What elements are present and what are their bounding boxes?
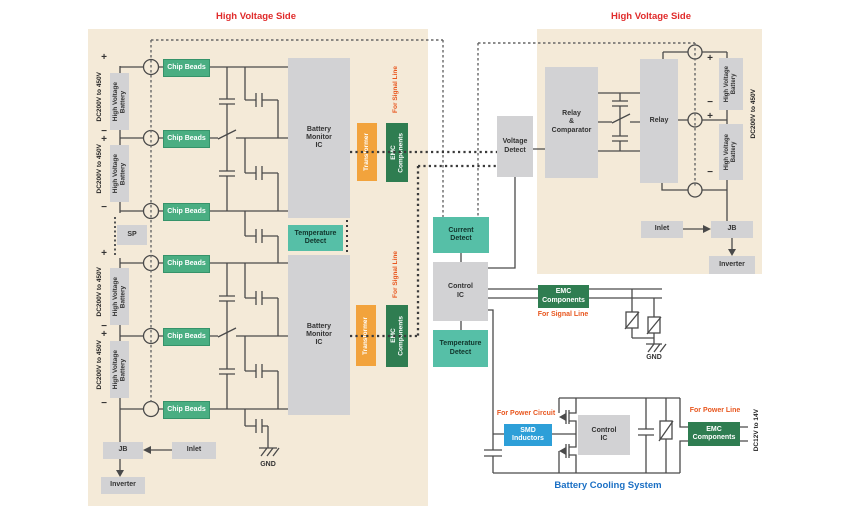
dc-range-text: DC200V to 450V: [96, 340, 103, 390]
minus-sign: −: [98, 203, 110, 213]
plus-sign: +: [98, 135, 110, 145]
emc-label: EMC Components: [390, 133, 405, 173]
jb-box: JB: [711, 221, 753, 238]
mosfet-icon: [559, 398, 576, 473]
chip-beads-box: Chip Beads: [163, 59, 210, 77]
dc-range-text: DC200V to 450V: [96, 72, 103, 122]
temperature-detect-box: Temperature Detect: [288, 225, 343, 251]
high-voltage-battery-box: High Voltage Battery: [110, 145, 129, 202]
sp-box: SP: [117, 225, 147, 245]
minus-sign: −: [704, 168, 716, 178]
battery-cooling-caption: Battery Cooling System: [546, 480, 670, 491]
high-voltage-battery-box: High Voltage Battery: [110, 341, 129, 398]
inlet-box: Inlet: [172, 442, 216, 459]
emc-label: EMC Components: [390, 316, 405, 356]
chip-beads-box: Chip Beads: [163, 255, 210, 273]
dc-range-text: DC200V to 450V: [96, 144, 103, 194]
battery-label: High Voltage Battery: [112, 350, 127, 389]
current-detect-box: Current Detect: [433, 217, 489, 253]
emc-components-box: EMC Components: [386, 305, 408, 367]
dc12-range-label: DC12V to 14V: [750, 403, 762, 457]
chip-beads-box: Chip Beads: [163, 401, 210, 419]
for-signal-line-label: For Signal Line: [530, 311, 596, 318]
left-panel-title: High Voltage Side: [191, 11, 321, 22]
dc12-range-text: DC12V to 14V: [753, 409, 760, 451]
high-voltage-battery-box: High Voltage Battery: [719, 124, 743, 180]
dc-range-label: DC200V to 450V: [747, 64, 759, 164]
dc-range-label: DC200V to 450V: [93, 257, 105, 327]
chip-beads-box: Chip Beads: [163, 130, 210, 148]
transformer-box: Transformer: [357, 123, 377, 181]
high-voltage-battery-box: High Voltage Battery: [110, 73, 129, 130]
diagram-canvas: High Voltage Side DC200V to 450V DC200V …: [0, 0, 848, 518]
battery-label: High Voltage Battery: [112, 154, 127, 193]
for-power-circuit-label: For Power Circuit: [494, 410, 558, 417]
gnd-label: GND: [640, 354, 668, 361]
chip-beads-box: Chip Beads: [163, 203, 210, 221]
inverter-box: Inverter: [101, 477, 145, 494]
high-voltage-battery-box: High Voltage Battery: [719, 58, 743, 110]
temperature-detect-box: Temperature Detect: [433, 330, 488, 367]
minus-sign: −: [704, 98, 716, 108]
battery-label: High Voltage Battery: [724, 66, 738, 102]
plus-sign: +: [704, 54, 716, 64]
dc-range-text: DC200V to 450V: [96, 267, 103, 317]
battery-monitor-ic-box: Battery Monitor IC: [288, 58, 350, 218]
right-panel-title: High Voltage Side: [586, 11, 716, 22]
dc-range-label: DC200V to 450V: [93, 330, 105, 400]
jb-box: JB: [103, 442, 143, 459]
for-signal-line-label: For Signal Line: [388, 243, 403, 305]
varistor-icon: [625, 289, 661, 344]
transformer-box: Transformer: [356, 305, 376, 366]
high-voltage-battery-box: High Voltage Battery: [110, 268, 129, 325]
battery-label: High Voltage Battery: [112, 82, 127, 121]
for-signal-line-label: For Signal Line: [388, 58, 403, 120]
control-ic-box: Control IC: [578, 415, 630, 455]
left-high-voltage-panel: [88, 29, 428, 506]
for-signal-line-text: For Signal Line: [392, 66, 399, 113]
plus-sign: +: [98, 53, 110, 63]
inlet-box: Inlet: [641, 221, 683, 238]
varistor-icon: [659, 421, 673, 441]
relay-box: Relay: [640, 59, 678, 183]
gnd-icon: [646, 344, 666, 352]
emc-components-box: EMC Components: [688, 422, 740, 446]
voltage-detect-box: Voltage Detect: [497, 116, 533, 177]
for-signal-line-text: For Signal Line: [392, 251, 399, 298]
dc-range-label: DC200V to 450V: [93, 62, 105, 132]
inverter-box: Inverter: [709, 256, 755, 274]
chip-beads-box: Chip Beads: [163, 328, 210, 346]
dc-range-text: DC200V to 450V: [750, 89, 757, 139]
transformer-label: Transformer: [363, 133, 370, 171]
emc-components-box: EMC Components: [538, 285, 589, 308]
plus-sign: +: [704, 112, 716, 122]
for-power-line-label: For Power Line: [686, 407, 744, 414]
plus-sign: +: [98, 330, 110, 340]
plus-sign: +: [98, 249, 110, 259]
battery-label: High Voltage Battery: [724, 134, 738, 170]
gnd-label: GND: [254, 461, 282, 468]
emc-components-box: EMC Components: [386, 123, 408, 182]
minus-sign: −: [98, 399, 110, 409]
control-ic-box: Control IC: [433, 262, 488, 321]
relay-comparator-box: Relay & Comparator: [545, 67, 598, 178]
smd-inductors-box: SMD Inductors: [504, 424, 552, 446]
battery-label: High Voltage Battery: [112, 277, 127, 316]
battery-monitor-ic-box: Battery Monitor IC: [288, 255, 350, 415]
transformer-label: Transformer: [362, 317, 369, 355]
